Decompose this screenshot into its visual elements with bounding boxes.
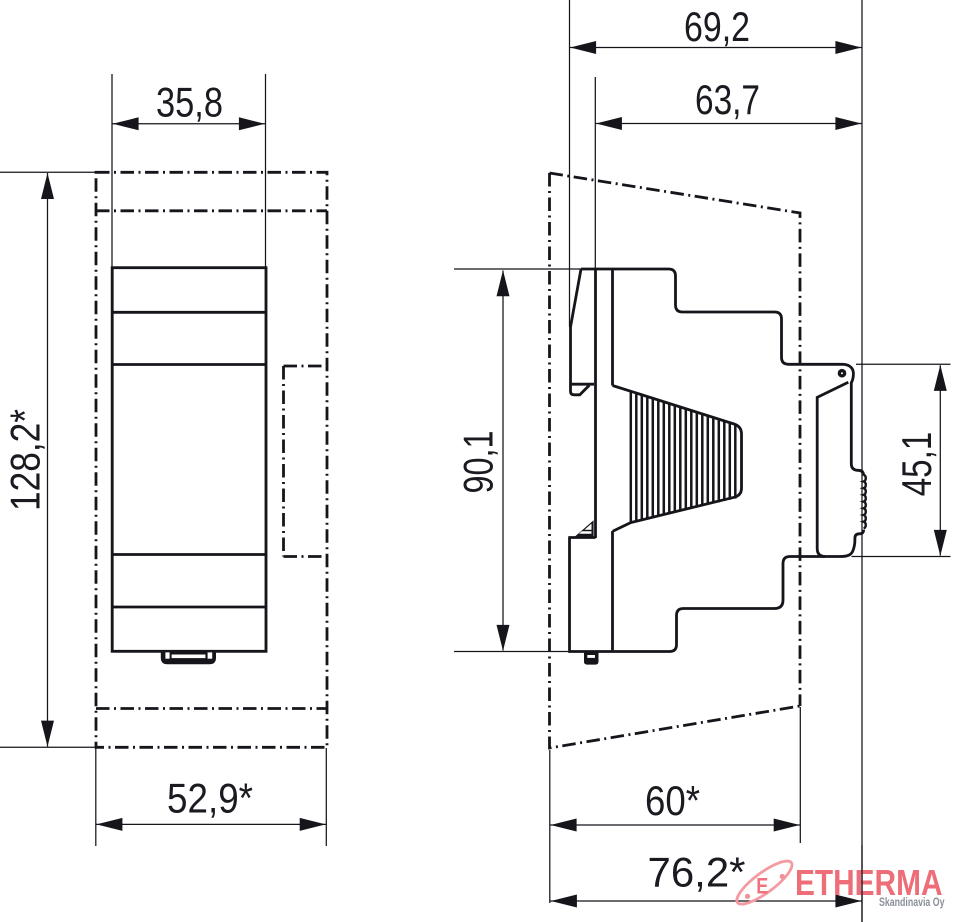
svg-text:Skandinavia Oy: Skandinavia Oy [879,897,945,909]
svg-text:76,2*: 76,2* [648,849,746,896]
svg-text:69,2: 69,2 [684,3,750,50]
svg-text:128,2*: 128,2* [1,409,48,511]
svg-text:35,8: 35,8 [156,79,223,126]
svg-text:90,1: 90,1 [455,431,502,494]
svg-text:63,7: 63,7 [695,76,760,123]
svg-text:60*: 60* [645,777,700,824]
svg-text:45,1: 45,1 [893,432,940,497]
svg-text:52,9*: 52,9* [167,775,253,822]
svg-text:E: E [756,874,768,899]
